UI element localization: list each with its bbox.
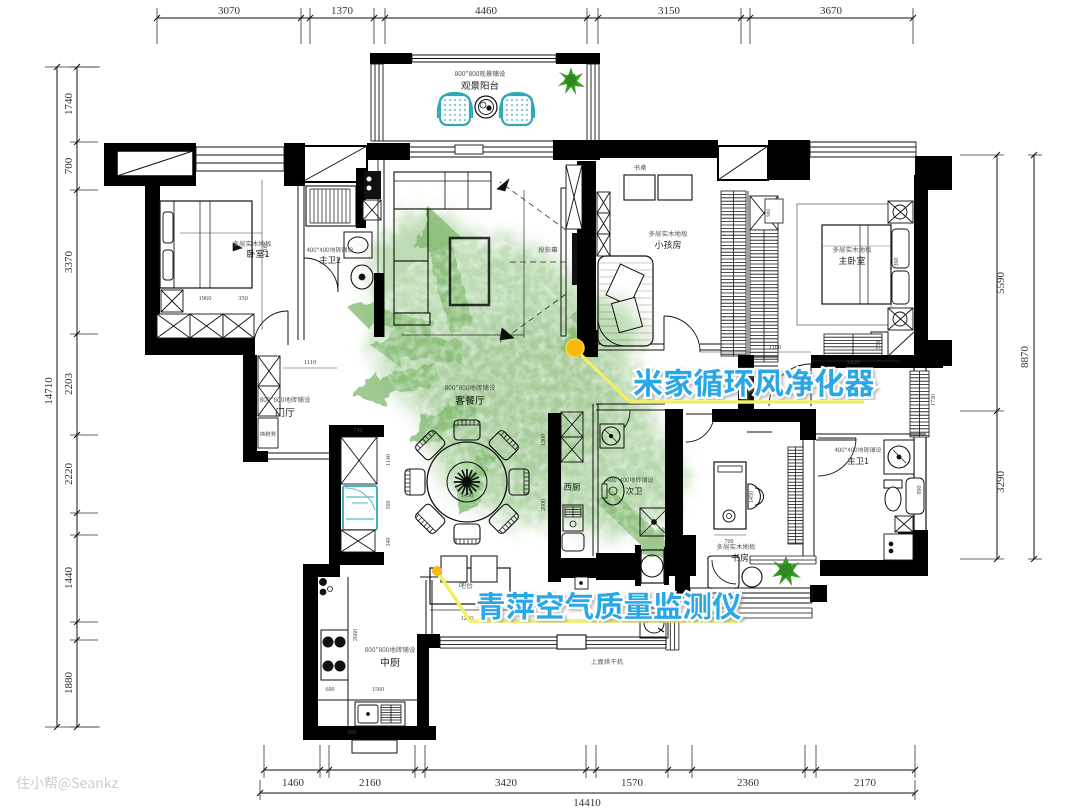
svg-text:5590: 5590: [995, 272, 1007, 295]
svg-text:990: 990: [917, 486, 923, 495]
svg-text:360: 360: [894, 258, 900, 267]
svg-text:2160: 2160: [359, 777, 382, 789]
svg-text:560: 560: [386, 501, 392, 510]
svg-text:1460: 1460: [282, 777, 305, 789]
svg-text:1740: 1740: [63, 93, 75, 116]
svg-text:14410: 14410: [573, 797, 601, 809]
svg-text:3670: 3670: [820, 5, 843, 17]
svg-text:14710: 14710: [43, 377, 55, 405]
svg-text:1730: 1730: [931, 394, 937, 406]
svg-text:350: 350: [238, 295, 248, 302]
svg-text:4460: 4460: [475, 5, 498, 17]
svg-text:3290: 3290: [995, 471, 1007, 494]
svg-text:2170: 2170: [854, 777, 877, 789]
svg-text:2203: 2203: [63, 373, 75, 396]
svg-text:550: 550: [876, 341, 882, 350]
svg-text:740: 740: [354, 428, 363, 434]
svg-text:1880: 1880: [63, 672, 75, 695]
svg-text:1960: 1960: [199, 295, 212, 302]
svg-text:600: 600: [326, 687, 335, 693]
svg-text:1420: 1420: [847, 359, 860, 366]
svg-text:1370: 1370: [331, 5, 354, 17]
svg-text:1450: 1450: [749, 491, 755, 503]
svg-text:2220: 2220: [63, 463, 75, 486]
svg-text:3370: 3370: [63, 251, 75, 274]
svg-text:1110: 1110: [304, 359, 317, 366]
svg-text:1570: 1570: [621, 777, 644, 789]
svg-text:2100: 2100: [262, 244, 269, 257]
svg-text:600: 600: [348, 730, 357, 736]
svg-text:2660: 2660: [353, 629, 359, 641]
svg-text:1100: 1100: [769, 344, 782, 351]
svg-text:1440: 1440: [63, 567, 75, 590]
svg-text:3150: 3150: [658, 5, 681, 17]
svg-text:900: 900: [766, 209, 772, 218]
svg-text:8870: 8870: [1019, 346, 1031, 369]
svg-text:1140: 1140: [386, 454, 392, 466]
svg-text:340: 340: [386, 538, 392, 547]
svg-text:3420: 3420: [495, 777, 518, 789]
svg-text:2360: 2360: [737, 777, 760, 789]
svg-text:1560: 1560: [372, 687, 384, 693]
svg-text:700: 700: [63, 157, 75, 174]
svg-text:3070: 3070: [218, 5, 241, 17]
